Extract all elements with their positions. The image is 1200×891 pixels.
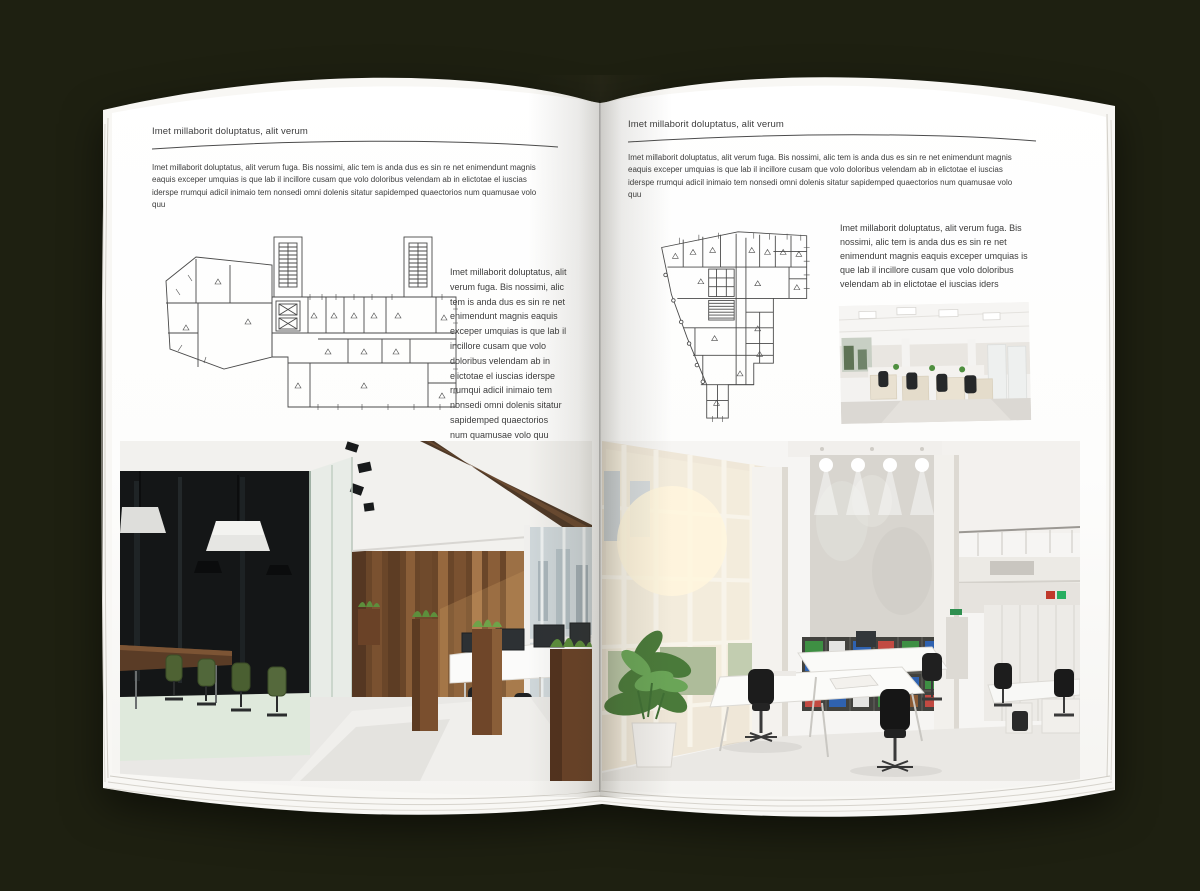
floor-plan-drawing xyxy=(158,235,458,415)
header-rule xyxy=(626,130,1040,146)
window-ticks xyxy=(679,233,809,422)
window-wall xyxy=(602,441,767,771)
monitor xyxy=(856,631,876,647)
concrete-wall xyxy=(810,455,942,637)
stair-tower xyxy=(404,237,432,297)
office-photo-small xyxy=(839,302,1031,424)
far-window-greenery xyxy=(841,337,872,372)
plant-pot xyxy=(632,723,676,767)
intro-paragraph: Imet millaborit doluptatus, alit verum f… xyxy=(152,162,544,212)
sun-glare xyxy=(617,486,727,596)
header-rule xyxy=(150,137,562,153)
page-title: Imet millaborit doluptatus, alit verum xyxy=(152,126,308,137)
brochure-mockup-scene: { "background_color": "#1e2011", "book":… xyxy=(0,0,1200,891)
floorplan-figure xyxy=(158,235,458,415)
office-photo-loft xyxy=(120,441,592,781)
floor-plan-drawing xyxy=(644,218,840,424)
wood-planter xyxy=(472,620,502,736)
window-ticks xyxy=(176,275,458,410)
left-page: Imet millaborit doluptatus, alit verum I… xyxy=(112,75,600,797)
wood-planter xyxy=(550,638,592,781)
figure-caption: Imet millaborit doluptatus, alit verum f… xyxy=(450,265,568,443)
room-markers xyxy=(672,248,801,406)
elevator-core xyxy=(709,269,734,320)
exit-door xyxy=(946,609,968,679)
office-photo-atrium xyxy=(602,441,1080,781)
wood-planter xyxy=(412,610,438,731)
mezzanine xyxy=(942,441,1080,613)
annex-wing xyxy=(166,257,272,369)
stage: Imet millaborit doluptatus, alit verum I… xyxy=(0,0,1200,891)
elevator-core xyxy=(276,301,300,331)
figure-caption: Imet millaborit doluptatus, alit verum f… xyxy=(840,221,1040,291)
waste-bin xyxy=(1012,711,1028,731)
right-page: Imet millaborit doluptatus, alit verum I… xyxy=(600,75,1106,797)
floorplan-figure xyxy=(644,218,840,424)
vent-grille xyxy=(990,561,1034,575)
stair-tower xyxy=(274,237,302,297)
intro-paragraph: Imet millaborit doluptatus, alit verum f… xyxy=(628,152,1020,202)
exit-sign xyxy=(950,609,962,615)
page-title: Imet millaborit doluptatus, alit verum xyxy=(628,119,784,130)
spine-line xyxy=(599,100,601,792)
